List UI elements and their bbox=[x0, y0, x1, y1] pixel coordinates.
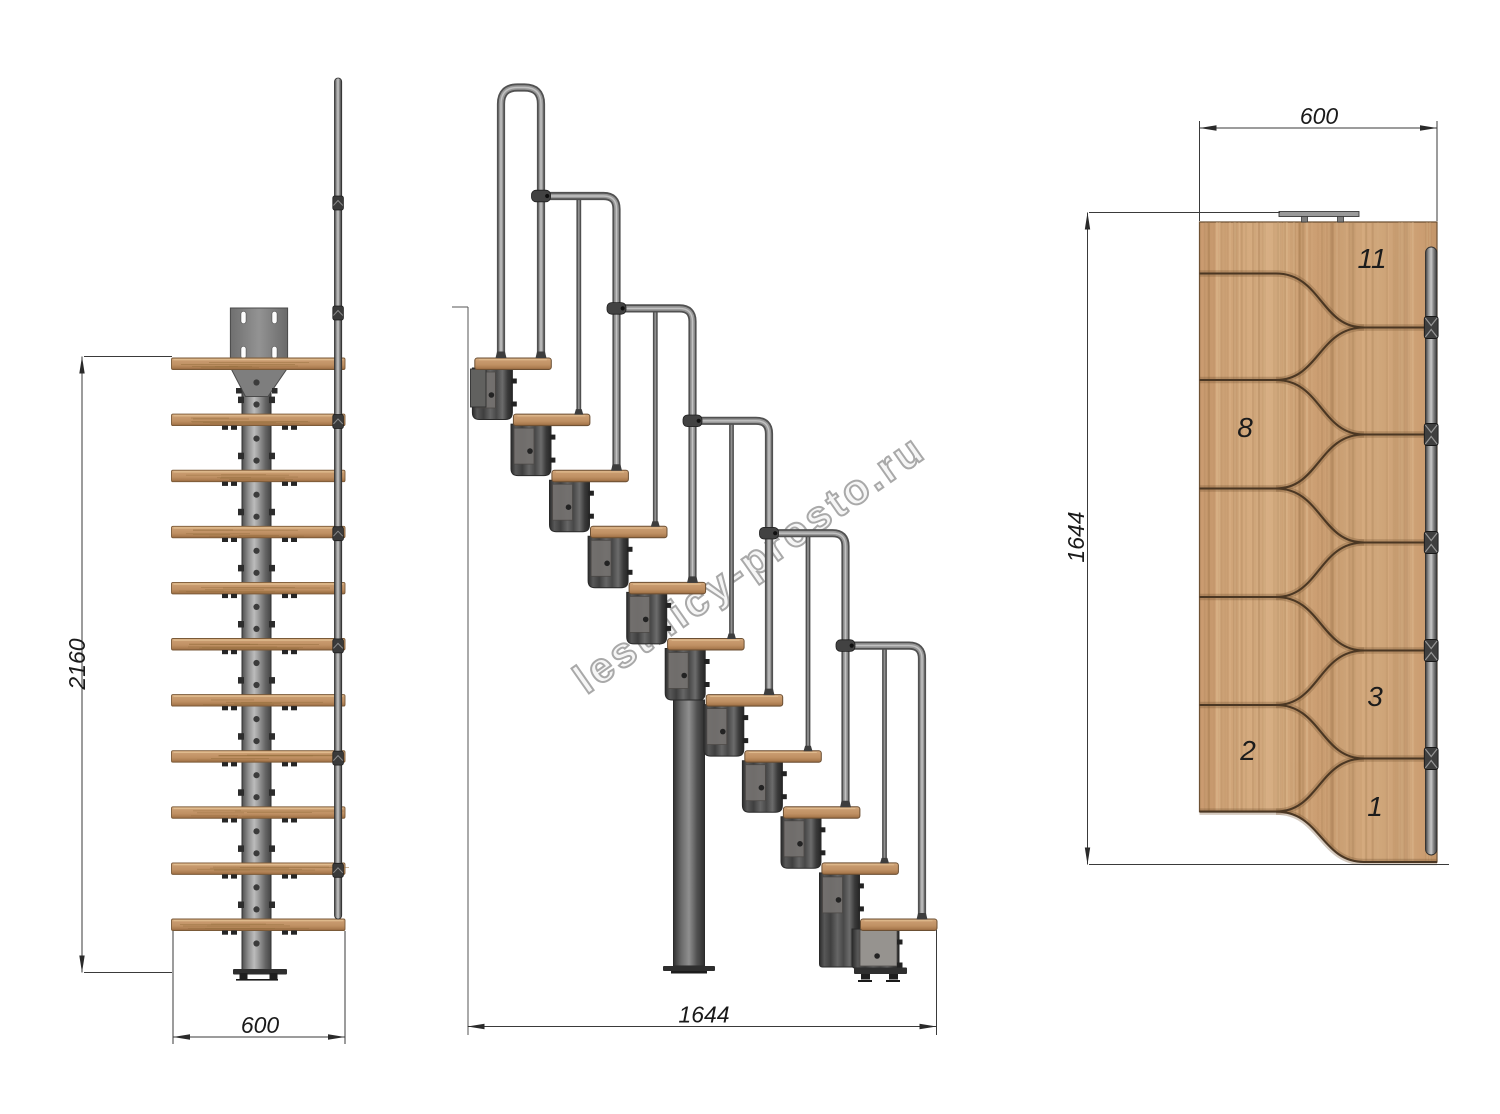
svg-text:2: 2 bbox=[1239, 735, 1256, 766]
svg-text:8: 8 bbox=[1237, 412, 1253, 443]
svg-text:2160: 2160 bbox=[64, 638, 90, 690]
svg-text:3: 3 bbox=[1367, 681, 1383, 712]
svg-text:1644: 1644 bbox=[678, 1002, 729, 1028]
svg-text:1644: 1644 bbox=[1063, 511, 1089, 562]
svg-text:11: 11 bbox=[1357, 243, 1386, 274]
svg-text:600: 600 bbox=[1300, 103, 1339, 129]
svg-text:1: 1 bbox=[1367, 791, 1383, 822]
svg-text:600: 600 bbox=[241, 1012, 280, 1038]
